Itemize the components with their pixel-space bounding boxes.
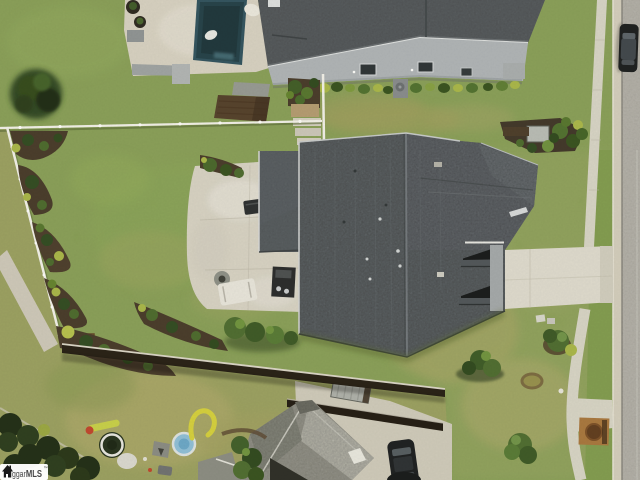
svg-text:ggarMLS: ggarMLS <box>12 469 42 480</box>
svg-text:™: ™ <box>44 466 49 471</box>
